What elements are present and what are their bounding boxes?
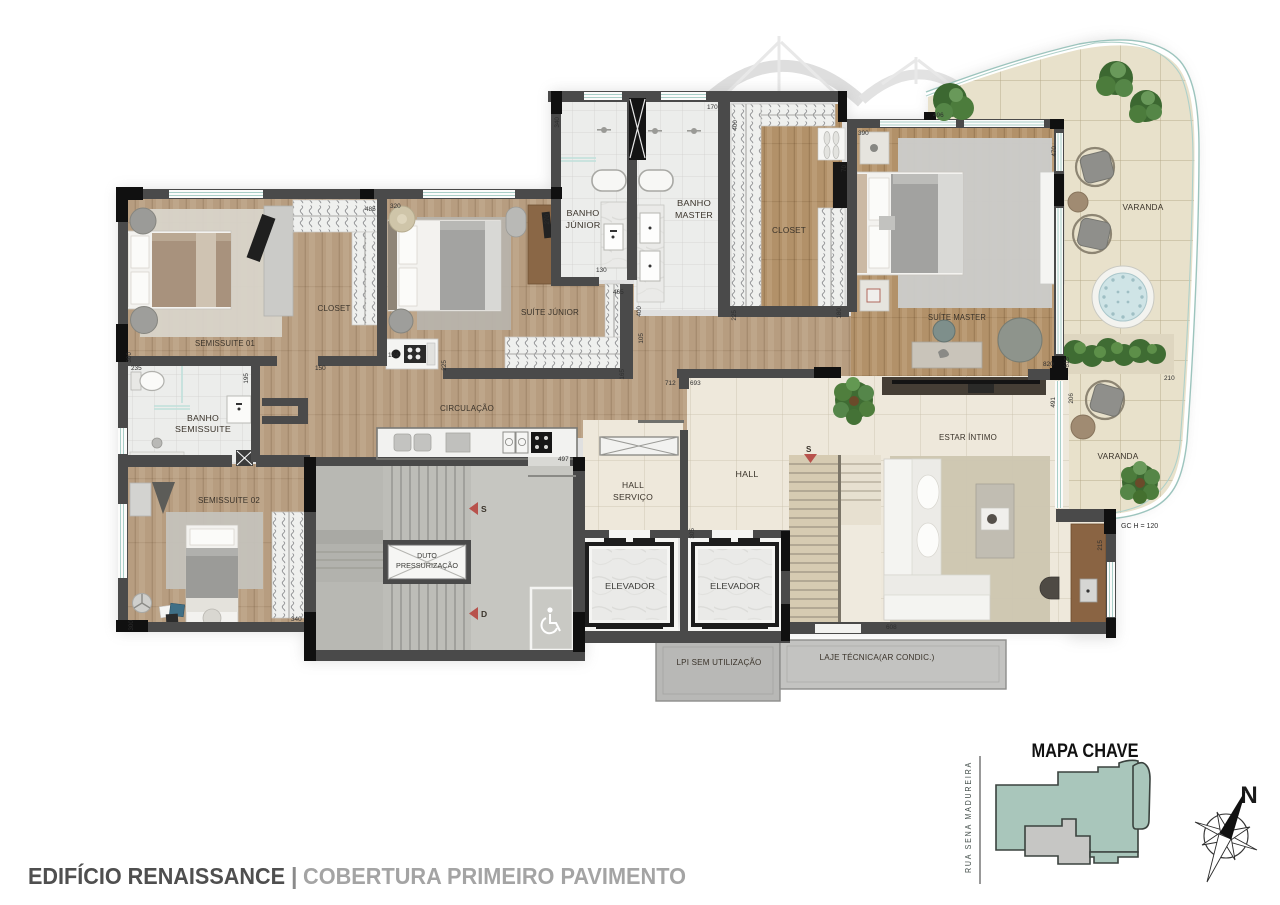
svg-text:170: 170 — [707, 104, 718, 111]
svg-text:COBERTURA PRIMEIRO PAVIMENTO: COBERTURA PRIMEIRO PAVIMENTO — [303, 863, 686, 889]
svg-text:225: 225 — [731, 310, 738, 321]
svg-text:S: S — [481, 504, 487, 514]
svg-text:PRESSURIZAÇÃO: PRESSURIZAÇÃO — [396, 561, 459, 570]
svg-text:D: D — [481, 609, 487, 619]
svg-text:485: 485 — [365, 206, 376, 213]
svg-text:|: | — [291, 863, 297, 889]
svg-text:820: 820 — [1043, 361, 1054, 368]
svg-text:70: 70 — [841, 165, 848, 173]
svg-text:470: 470 — [1051, 146, 1058, 157]
svg-text:496: 496 — [933, 112, 944, 119]
svg-text:LPI SEM UTILIZAÇÃO: LPI SEM UTILIZAÇÃO — [677, 657, 762, 667]
svg-text:VARANDA: VARANDA — [1098, 451, 1139, 461]
svg-text:BANHO: BANHO — [567, 208, 600, 218]
svg-text:MASTER: MASTER — [675, 210, 713, 220]
svg-text:320: 320 — [390, 203, 401, 210]
svg-text:BANHO: BANHO — [187, 413, 219, 423]
svg-text:180: 180 — [836, 308, 843, 319]
svg-text:340: 340 — [554, 117, 561, 128]
svg-text:124: 124 — [388, 352, 399, 359]
svg-text:HALL: HALL — [622, 480, 644, 490]
svg-text:CLOSET: CLOSET — [318, 303, 352, 313]
svg-text:165: 165 — [619, 369, 626, 380]
svg-text:SEMISSUITE 02: SEMISSUITE 02 — [198, 495, 260, 505]
svg-text:693: 693 — [690, 380, 701, 387]
svg-text:210: 210 — [1164, 375, 1175, 382]
svg-text:LAJE TÉCNICA(AR CONDIC.): LAJE TÉCNICA(AR CONDIC.) — [820, 652, 935, 662]
svg-text:300: 300 — [128, 620, 135, 631]
svg-text:215: 215 — [1097, 540, 1104, 551]
svg-text:ELEVADOR: ELEVADOR — [605, 581, 655, 591]
svg-text:400: 400 — [732, 120, 739, 131]
svg-text:SEMISSUITE 01: SEMISSUITE 01 — [195, 338, 255, 348]
svg-text:MAPA CHAVE: MAPA CHAVE — [1032, 741, 1139, 762]
svg-text:491: 491 — [1050, 397, 1057, 408]
svg-text:HALL: HALL — [736, 469, 759, 479]
svg-text:ESTAR ÍNTIMO: ESTAR ÍNTIMO — [939, 432, 997, 442]
svg-text:270: 270 — [544, 214, 551, 225]
svg-text:SEMISSUITE: SEMISSUITE — [175, 424, 231, 434]
svg-text:340: 340 — [291, 616, 302, 623]
svg-text:235: 235 — [131, 365, 142, 372]
svg-text:465: 465 — [613, 289, 624, 296]
svg-text:BANHO: BANHO — [677, 198, 711, 208]
svg-text:712: 712 — [665, 380, 676, 387]
svg-text:SUÍTE JÚNIOR: SUÍTE JÚNIOR — [521, 307, 579, 317]
svg-text:225: 225 — [441, 360, 448, 371]
svg-text:VARANDA: VARANDA — [1123, 202, 1164, 212]
svg-text:130: 130 — [596, 267, 607, 274]
svg-text:RUA SENA MADUREIRA: RUA SENA MADUREIRA — [963, 761, 973, 873]
svg-text:CLOSET: CLOSET — [772, 225, 807, 235]
svg-text:300: 300 — [126, 352, 133, 363]
svg-text:105: 105 — [638, 333, 645, 344]
svg-text:GC H = 120: GC H = 120 — [1121, 523, 1158, 530]
svg-text:SERVIÇO: SERVIÇO — [613, 492, 653, 502]
svg-text:195: 195 — [243, 373, 250, 384]
svg-text:206: 206 — [1068, 393, 1075, 404]
svg-text:DUTO: DUTO — [417, 553, 437, 560]
svg-text:CIRCULAÇÃO: CIRCULAÇÃO — [440, 403, 494, 413]
svg-text:SUÍTE MASTER: SUÍTE MASTER — [928, 312, 986, 322]
svg-text:150: 150 — [315, 365, 326, 372]
svg-text:608: 608 — [886, 624, 897, 631]
svg-text:JÚNIOR: JÚNIOR — [566, 220, 601, 230]
svg-text:S: S — [806, 445, 812, 454]
svg-text:497: 497 — [558, 456, 569, 463]
svg-text:390: 390 — [858, 130, 869, 137]
svg-text:ELEVADOR: ELEVADOR — [710, 581, 760, 591]
svg-text:400: 400 — [636, 306, 643, 317]
svg-text:615: 615 — [1064, 357, 1071, 368]
svg-text:305: 305 — [689, 528, 696, 539]
svg-text:EDIFÍCIO RENAISSANCE: EDIFÍCIO RENAISSANCE — [28, 862, 285, 889]
